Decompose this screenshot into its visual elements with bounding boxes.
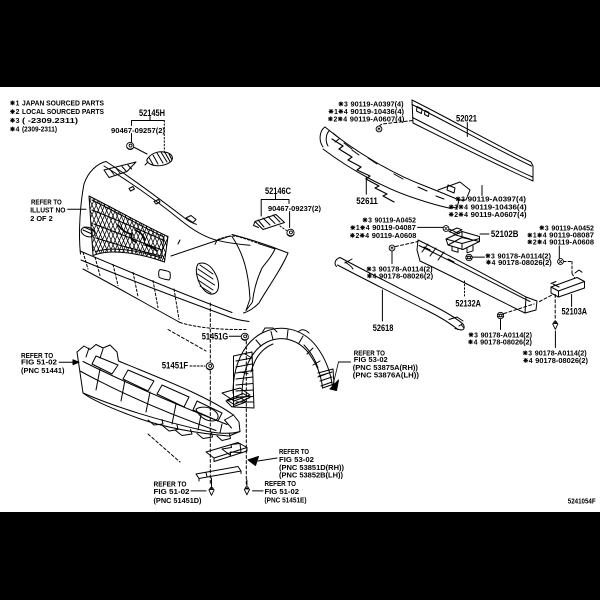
svg-text:90119-A0608: 90119-A0608 bbox=[372, 231, 417, 240]
svg-text:51451F: 51451F bbox=[162, 361, 189, 372]
svg-text:1: 1 bbox=[16, 99, 20, 108]
svg-text:(2309-2311): (2309-2311) bbox=[22, 125, 57, 134]
svg-text:( -2309.2311): ( -2309.2311) bbox=[22, 116, 79, 125]
svg-text:52132A: 52132A bbox=[455, 299, 481, 310]
svg-text:90119-A0608: 90119-A0608 bbox=[549, 238, 594, 247]
svg-text:52102B: 52102B bbox=[491, 229, 519, 240]
svg-text:2: 2 bbox=[16, 107, 20, 116]
svg-text:(PNC 51441): (PNC 51441) bbox=[21, 366, 65, 375]
svg-text:52021: 52021 bbox=[456, 114, 478, 125]
svg-text:2: 2 bbox=[533, 238, 537, 247]
svg-text:FIG 51-02: FIG 51-02 bbox=[154, 487, 190, 496]
svg-text:3: 3 bbox=[16, 116, 20, 125]
svg-text:(PNC 51451E): (PNC 51451E) bbox=[265, 496, 307, 505]
svg-text:51451G: 51451G bbox=[202, 332, 229, 343]
svg-text:2: 2 bbox=[334, 115, 338, 124]
svg-text:2 OF 2: 2 OF 2 bbox=[30, 214, 53, 223]
svg-text:90119-A0607(4): 90119-A0607(4) bbox=[471, 210, 528, 219]
svg-text:90178-08026(2): 90178-08026(2) bbox=[498, 258, 552, 267]
svg-text:JAPAN SOURCED PARTS: JAPAN SOURCED PARTS bbox=[22, 99, 104, 108]
svg-text:5241054F: 5241054F bbox=[568, 497, 596, 506]
svg-text:90178-08026(2): 90178-08026(2) bbox=[480, 338, 532, 347]
svg-text:(PNC 51451D): (PNC 51451D) bbox=[154, 496, 202, 505]
svg-text:52611: 52611 bbox=[356, 196, 378, 207]
svg-text:52618: 52618 bbox=[373, 323, 394, 334]
svg-text:2: 2 bbox=[356, 231, 360, 240]
svg-text:90467-09257(2): 90467-09257(2) bbox=[111, 126, 165, 135]
svg-text:52145H: 52145H bbox=[139, 108, 165, 119]
svg-text:90467-09237(2): 90467-09237(2) bbox=[268, 204, 321, 213]
svg-text:2: 2 bbox=[454, 210, 458, 219]
svg-text:52103A: 52103A bbox=[562, 307, 588, 318]
svg-text:90178-08026(2): 90178-08026(2) bbox=[379, 272, 434, 281]
svg-text:90119-A0607(4): 90119-A0607(4) bbox=[350, 115, 405, 124]
svg-text:90178-08026(2): 90178-08026(2) bbox=[535, 356, 588, 365]
svg-text:(PNC 53876A(LH)): (PNC 53876A(LH)) bbox=[353, 371, 420, 380]
svg-text:(PNC 53852B(LH)): (PNC 53852B(LH)) bbox=[279, 470, 343, 479]
svg-text:52146C: 52146C bbox=[265, 186, 291, 197]
svg-text:LOCAL SOURCED PARTS: LOCAL SOURCED PARTS bbox=[22, 107, 104, 116]
